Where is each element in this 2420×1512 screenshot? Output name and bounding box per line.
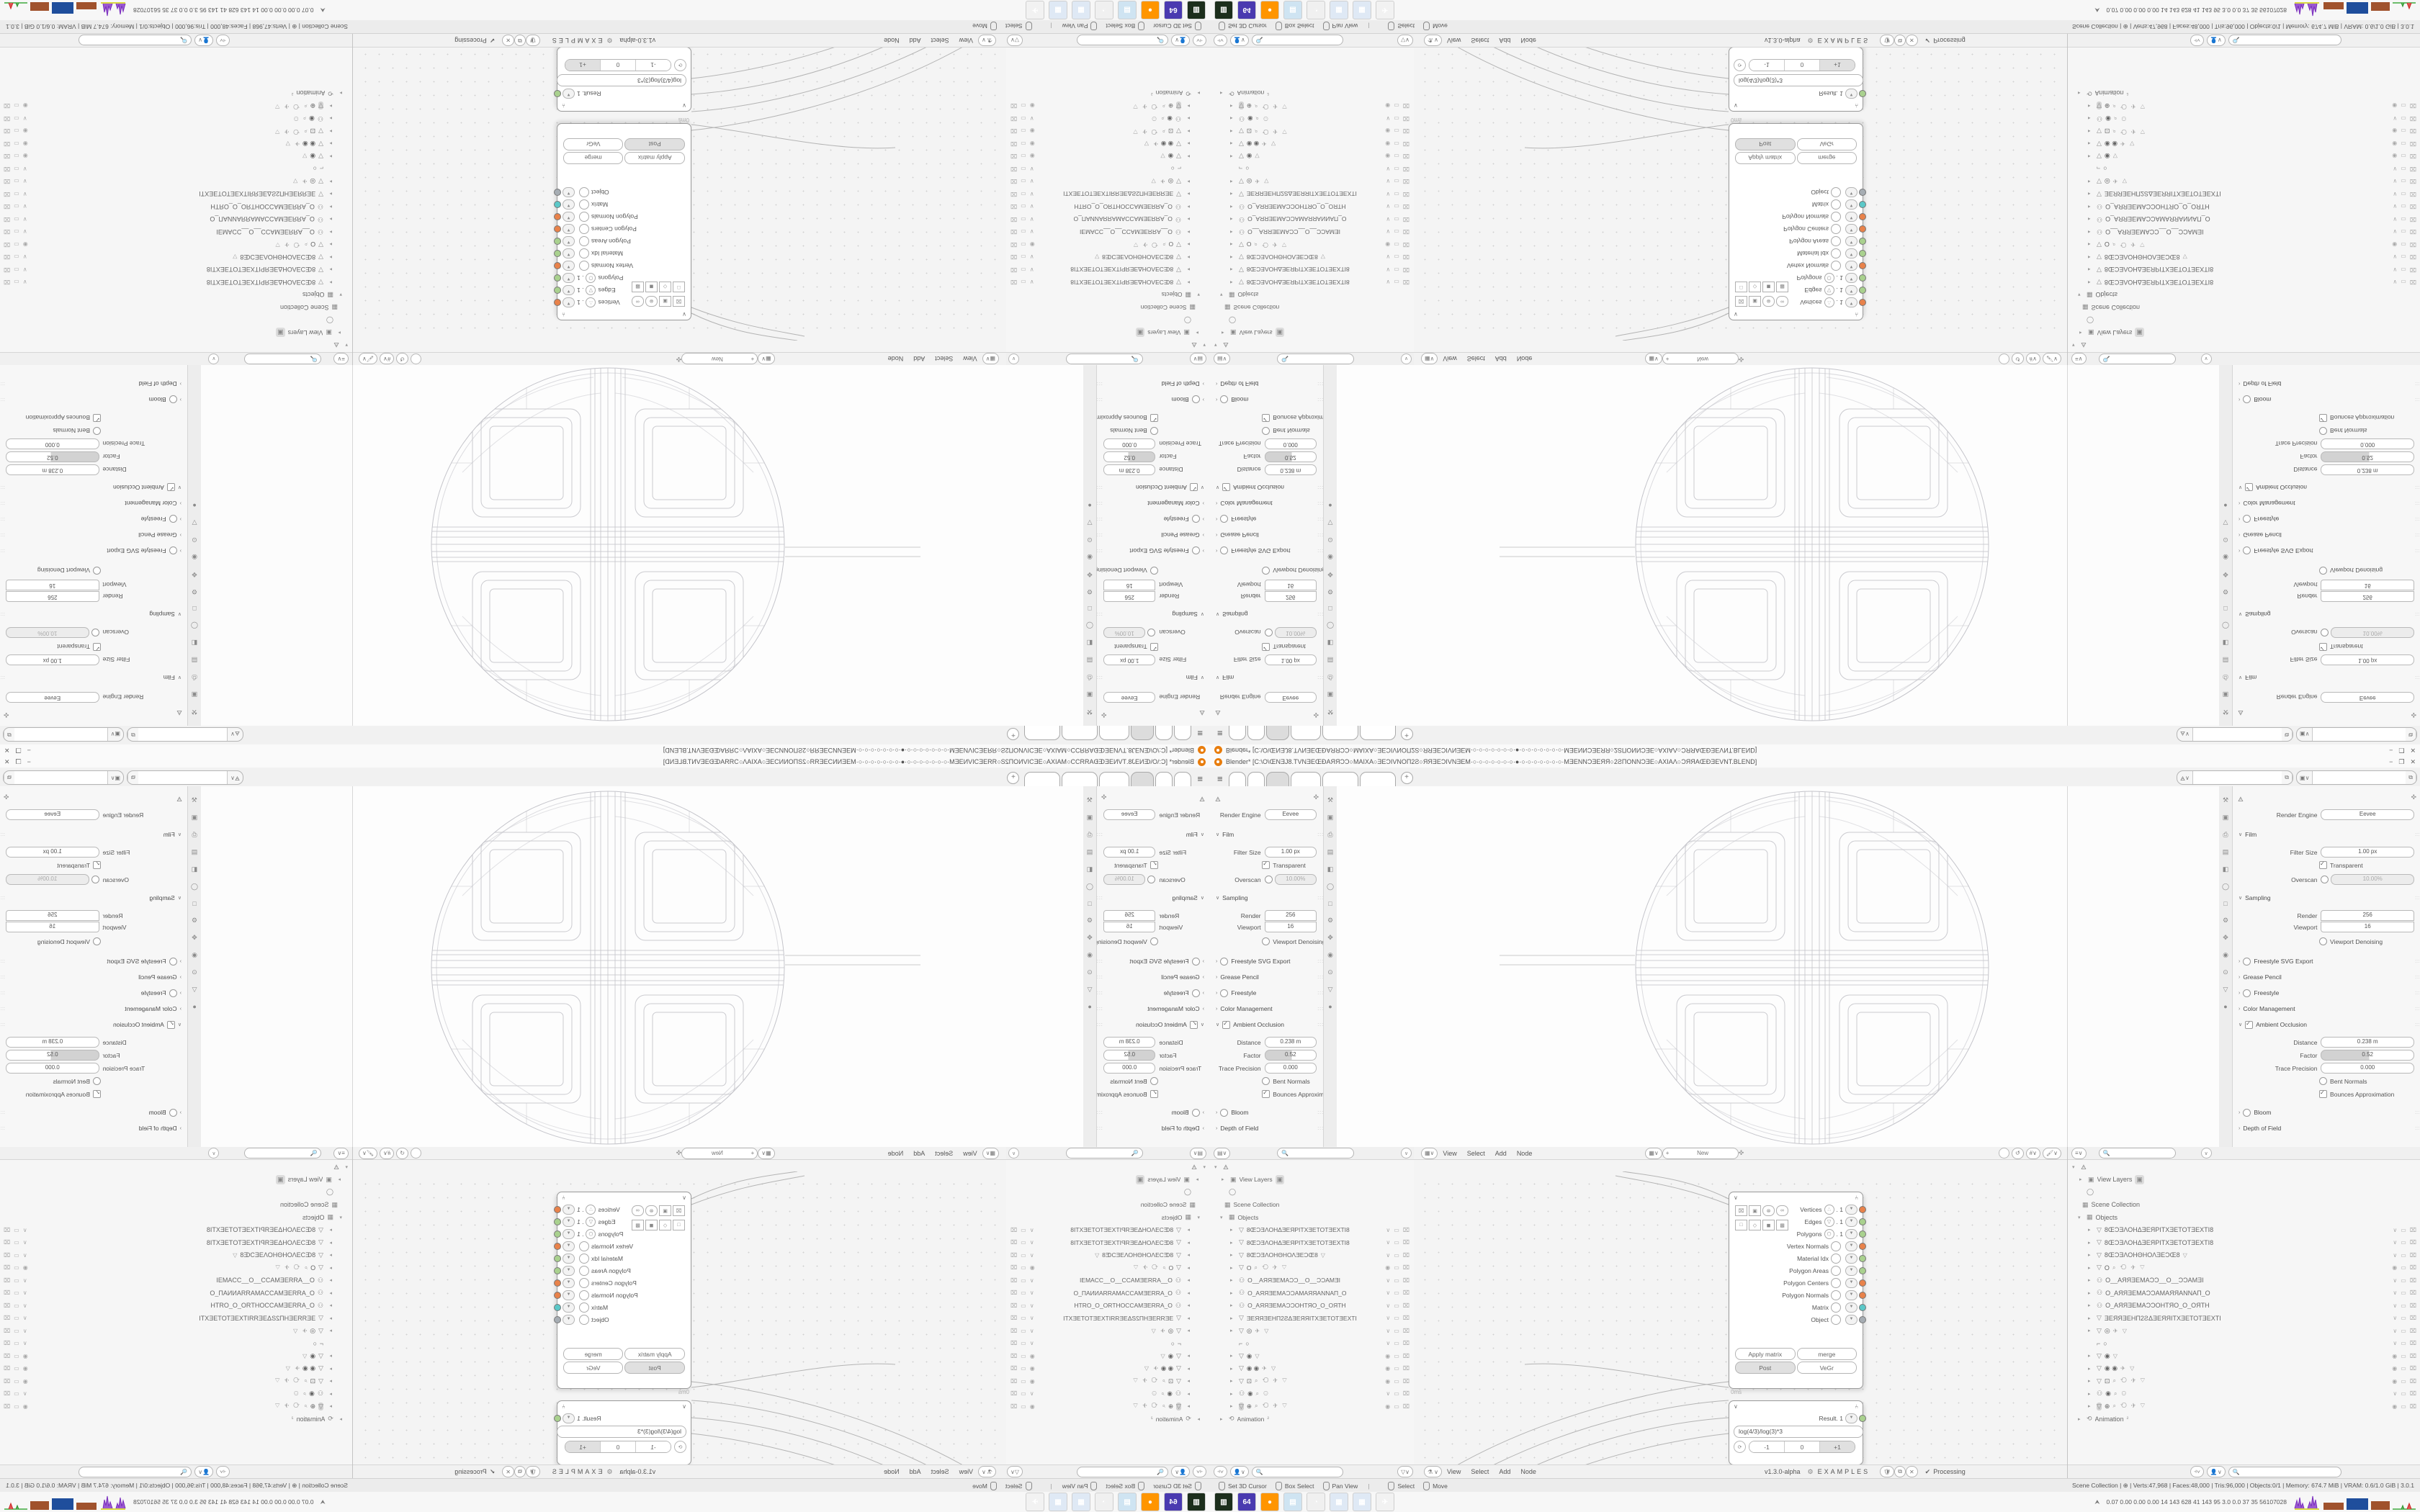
material-tab-icon[interactable]: ● <box>1328 1003 1332 1010</box>
socket-dropdown[interactable]: ▼ <box>1845 1217 1857 1227</box>
output-socket-row[interactable]: Edges ▽ . 1 ▼ <box>557 284 691 297</box>
app-icon[interactable]: ▦ <box>1072 1 1090 19</box>
world-tab-icon[interactable]: ◯ <box>2222 621 2229 629</box>
sverchok-tree-icon[interactable]: ⚗∨ <box>1424 35 1442 46</box>
output-socket-row[interactable]: Matrix ▼ <box>557 199 691 211</box>
scene-collection-row[interactable]: ▦Scene Collection <box>1006 1199 1210 1212</box>
ao-factor-slider[interactable]: 0.52 <box>6 1050 99 1061</box>
outliner-object-row[interactable]: ▸ ▽ 8ŒƆƎΛΟΗΘΗΟΛƎΕƆŒ8 ▽ ∨▭⌧ <box>2068 1249 2420 1262</box>
object-name[interactable]: O <box>310 240 315 248</box>
socket-dropdown[interactable]: ▼ <box>563 212 575 222</box>
object-name[interactable]: ⊕ <box>1168 1403 1173 1410</box>
node-menu-item[interactable]: Add <box>908 1150 930 1157</box>
scene-collection-row[interactable]: ▦Scene Collection <box>2068 301 2420 314</box>
outliner-object-row[interactable]: ▸ ⚇ O_АЯЯƎΕΜΑƆƆΑΜΑЯЯΑΝΝΑΠ_O ∨▭⌧ <box>0 213 352 226</box>
outliner-object-row[interactable]: ▸ ▽ ◉ ▽ ◉▭⌧ <box>0 150 352 163</box>
freestyle-svg-section[interactable]: Freestyle SVG Export <box>2254 958 2313 965</box>
world-row[interactable]: ◯ <box>0 1186 352 1199</box>
object-name[interactable]: 8ŒƆƎΛΟΗΔƎΕЯΡΙΤΧƎΕΤΟΤƎΕΧΤΙ8 <box>207 1226 315 1233</box>
object-toggles[interactable]: ∨▭⌧ <box>2393 1340 2420 1346</box>
node-menu-item[interactable]: View <box>1442 1468 1466 1475</box>
object-name[interactable]: ƎΕЯЯƎΕΗΠ2ƧΔƎΕЯЯΙΤΧƎΕΤΟΤƎΕΧΤΙ <box>2105 1315 2221 1322</box>
object-toggles[interactable]: ∨▭⌧ <box>1006 1328 1034 1334</box>
object-toggles[interactable]: ∨▭⌧ <box>0 1277 27 1284</box>
freestyle-section[interactable]: Freestyle <box>141 516 166 523</box>
ao-section[interactable]: Ambient Occlusion <box>1233 1021 1284 1028</box>
modifier-tab-icon[interactable]: ⚙ <box>1087 917 1093 924</box>
overscan-toggle[interactable] <box>2321 629 2329 636</box>
footer-search[interactable]: 🔍 <box>1252 35 1343 46</box>
sampling-viewport-field[interactable]: 16 <box>1103 580 1155 590</box>
node-grid[interactable]: ∨⑃ ⌧▣ ⊗∞ □◇◼▩ Vertices ∴ <box>353 1171 1006 1465</box>
scene-tab-icon[interactable]: ◧ <box>1327 865 1334 873</box>
editor-type-icon[interactable]: 🜁 <box>1215 706 1221 719</box>
sampling-section[interactable]: Sampling <box>2245 894 2270 901</box>
dof-section[interactable]: Depth of Field <box>139 380 177 387</box>
output-socket-row[interactable]: Polygon Areas ▼ <box>557 1264 691 1277</box>
object-toggles[interactable]: ◉▭⌧ <box>1385 1365 1414 1372</box>
sampling-render-field[interactable]: 256 <box>1103 910 1155 921</box>
image-icon[interactable]: ▣∨ <box>2297 771 2313 784</box>
object-name[interactable]: O__АЯЯƎΕΜΑƆƆ__O__ƆƆΑΜƎΙ <box>216 228 315 235</box>
unlink-circle-icon[interactable] <box>411 354 421 365</box>
object-toggles[interactable]: ∨▭⌧ <box>1386 1315 1414 1321</box>
result-socket[interactable] <box>554 1415 561 1422</box>
object-toggles[interactable]: ∨▭⌧ <box>1386 1239 1414 1246</box>
funnel-icon[interactable]: ▽∨ <box>1007 35 1023 46</box>
zero-button[interactable]: 0 <box>1785 1441 1820 1452</box>
ao-distance-field[interactable]: 0.238 m <box>1103 1037 1155 1048</box>
output-tab-icon[interactable]: ⎙ <box>192 831 197 839</box>
object-toggles[interactable]: ∨▭⌧ <box>2393 115 2420 122</box>
node-tree-row[interactable]: ▾🜁 <box>2068 1161 2420 1174</box>
world-tab-icon[interactable]: ◯ <box>1327 883 1334 891</box>
outliner-object-row[interactable]: ▸ ⚇ O_АЯЯƎΕΜΑƆƆΟΗΤЯΟ_O_ΟЯΤΗ ∨▭⌧ <box>1210 1300 1414 1313</box>
sampling-viewport-field[interactable]: 16 <box>2321 580 2414 590</box>
socket-dropdown[interactable]: ▼ <box>563 237 575 247</box>
minus-one-button[interactable]: -1 <box>1749 1441 1785 1452</box>
funnel-icon[interactable]: ▽∨ <box>1007 1466 1023 1477</box>
node-menu-item[interactable]: View <box>1438 356 1461 363</box>
node-menu-item[interactable]: Add <box>1494 37 1515 44</box>
scene-tab-icon[interactable]: ◧ <box>1087 639 1093 647</box>
socket-dropdown[interactable]: ▼ <box>563 1290 575 1300</box>
object-name[interactable]: ◉ ◉ <box>1247 140 1259 148</box>
object-name[interactable]: 8ŒƆƎΛΟΗΘΗΟΛƎΕƆŒ8 <box>2105 1251 2180 1259</box>
object-toggles[interactable]: ∨▭⌧ <box>0 228 27 235</box>
object-name[interactable]: O_АЯЯƎΕΜΑƆƆΟΗΤЯΟ_O_ΟЯΤΗ <box>1247 203 1346 210</box>
object-name[interactable]: O <box>2105 240 2110 248</box>
objects-node-header[interactable]: ∨⑃ <box>557 1192 691 1203</box>
tree-select-icon[interactable]: ▦∨ <box>758 354 774 365</box>
node-menu-item[interactable]: Select <box>1462 1150 1490 1157</box>
object-toggles[interactable]: ∨▭⌧ <box>0 216 27 222</box>
particles-tab-icon[interactable]: ✥ <box>1087 570 1093 578</box>
app-icon[interactable]: ▤ <box>1118 1493 1137 1511</box>
object-name[interactable]: ⊕ <box>2105 102 2110 109</box>
object-name[interactable]: O_АЯЯƎΕΜΑƆƆΑΜΑЯЯΑΝΝΑΠ_O <box>2105 1290 2210 1297</box>
bounces-checkbox[interactable] <box>1150 414 1158 422</box>
outliner-object-row[interactable]: ▸ ▽ 8ŒƆƎΛΟΗΔƎΕЯΡΙΤΧƎΕΤΟΤƎΕΧΤΙ8 ∨▭⌧ <box>2068 1236 2420 1249</box>
viewlayer-tab-icon[interactable]: ▤ <box>1327 848 1334 856</box>
viewport-3d[interactable] <box>353 365 1083 726</box>
object-name[interactable]: ◉ <box>309 114 315 122</box>
examples-menu[interactable]: EXAMPLES <box>1818 1468 1870 1475</box>
freestyle-svg-toggle[interactable] <box>169 958 177 966</box>
object-toggles[interactable]: ◉▭⌧ <box>1006 1365 1035 1372</box>
object-toggles[interactable]: ◉▭⌧ <box>1385 140 1414 147</box>
render-engine-select[interactable]: Eevee <box>2321 809 2414 820</box>
object-toggles[interactable]: ∨▭⌧ <box>1386 1390 1414 1397</box>
outliner-object-row[interactable]: ▸ ▽ ⊕ ⌕ ⟲ ✈ ▽ ◉▭⌧ <box>2068 99 2420 112</box>
workspace-tab-active[interactable] <box>1131 726 1154 740</box>
color-management-section[interactable]: Color Management <box>2243 500 2295 507</box>
outliner-object-row[interactable]: ▸ ▽ ƎΕЯЯƎΕΗΠ2ƧΔƎΕЯЯΙΤΧƎΕΤΟΤƎΕΧΤΙ ∨▭⌧ <box>2068 188 2420 201</box>
outliner-object-row[interactable]: ▸ ▽ ƎΕЯЯƎΕΗΠ2ƧΔƎΕЯЯΙΤΧƎΕΤΟΤƎΕΧΤΙ ∨▭⌧ <box>1006 1312 1210 1325</box>
output-tab-icon[interactable]: ⎙ <box>2223 831 2228 839</box>
user-filter-icon[interactable]: 👤∨ <box>1230 35 1249 46</box>
world-tab-icon[interactable]: ◯ <box>1086 621 1093 629</box>
image-id-input[interactable] <box>2313 771 2406 784</box>
grease-pencil-section[interactable]: Grease Pencil <box>2243 973 2281 981</box>
editor-type-icon[interactable]: 🜁 <box>2238 706 2244 719</box>
modifier-tab-icon[interactable]: ⚙ <box>2223 917 2228 924</box>
freestyle-toggle[interactable] <box>169 516 177 523</box>
node-menu-item[interactable]: Select <box>1466 37 1494 44</box>
bent-normals-toggle[interactable] <box>93 1077 101 1085</box>
ao-section[interactable]: Ambient Occlusion <box>1233 484 1284 491</box>
freestyle-svg-toggle[interactable] <box>169 547 177 555</box>
outliner-object-row[interactable]: ▸ ▽ 8ŒƆƎΛΟΗΔƎΕЯΡΙΤΧƎΕΤΟΤƎΕΧΤΙ8 ∨▭⌧ <box>2068 1224 2420 1237</box>
footer-search[interactable]: 🔍 <box>1077 1467 1168 1477</box>
object-name[interactable]: O_АЯЯƎΕΜΑƆƆΑΜΑЯЯΑΝΝΑΠ_O <box>2105 215 2210 222</box>
freestyle-svg-toggle[interactable] <box>1192 547 1200 555</box>
outliner-object-row[interactable]: ▸ ▽ 8ŒƆƎΛΟΗΔƎΕЯΡΙΤΧƎΕΤΟΤƎΕΧΤΙ8 ∨▭⌧ <box>1006 276 1210 289</box>
ao-factor-slider[interactable]: 0.52 <box>1103 451 1155 462</box>
object-name[interactable]: ◉ <box>309 1390 315 1398</box>
footer-search[interactable]: 🔍 <box>79 35 192 46</box>
freestyle-toggle[interactable] <box>169 989 177 997</box>
particles-tab-icon[interactable]: ✥ <box>1087 934 1093 942</box>
overlay-node-icon[interactable]: 🖌∨ <box>359 354 377 365</box>
minimize-button[interactable]: − <box>27 758 31 766</box>
outliner-object-row[interactable]: ▸ ⚇ O__АЯЯƎΕΜΑƆƆ__O__ƆƆΑΜƎΙ ∨▭⌧ <box>2068 225 2420 238</box>
image-icon[interactable]: ▣∨ <box>107 771 123 784</box>
freestyle-section[interactable]: Freestyle <box>1231 989 1256 996</box>
output-socket-row[interactable]: Material Idx ▼ <box>557 248 691 260</box>
outliner-object-row[interactable]: ▸ ▽ 8ŒƆƎΛΟΗΔƎΕЯΡΙΤΧƎΕΤΟΤƎΕΧΤΙ8 ∨▭⌧ <box>1006 1224 1210 1237</box>
sverchok-tree-icon[interactable]: ⚗∨ <box>978 1466 996 1477</box>
outliner-object-row[interactable]: ▸ ⚇ O__АЯЯƎΕΜΑƆƆ__O__ƆƆΑΜƎΙ ∨▭⌧ <box>1210 1274 1414 1287</box>
sampling-viewport-field[interactable]: 16 <box>6 580 99 590</box>
close-button[interactable]: ✕ <box>4 758 10 766</box>
workspace-tab-active[interactable] <box>1131 772 1154 786</box>
outliner-object-row[interactable]: ▸ ⚇ ◉ ⌕ ⚇ ∨▭⌧ <box>2068 112 2420 125</box>
node-menu-item[interactable]: Add <box>905 1468 926 1475</box>
app-icon[interactable]: ▦ <box>1049 1493 1067 1511</box>
pin-icon[interactable]: ✜ <box>2411 711 2416 719</box>
object-toggles[interactable]: ◉▭⌧ <box>1006 241 1035 248</box>
constraints-tab-icon[interactable]: ⊙ <box>2223 968 2228 976</box>
app-icon[interactable]: ▦ <box>1353 1493 1371 1511</box>
workspace-tab[interactable] <box>1247 772 1265 786</box>
workspace-tab[interactable] <box>1360 772 1396 786</box>
filter-size-field[interactable]: 1.00 px <box>1103 654 1155 665</box>
sync-icon[interactable]: ⫞∨ <box>1193 35 1206 46</box>
object-name[interactable]: 8ŒƆƎΛΟΗΔƎΕЯΡΙΤΧƎΕΤΟΤƎΕΧΤΙ8 <box>1070 1239 1173 1246</box>
object-name[interactable]: ◉ ◉ <box>2105 1364 2117 1372</box>
transparent-checkbox[interactable] <box>2319 643 2327 651</box>
output-socket-row[interactable]: Object ▼ <box>557 186 691 199</box>
object-name[interactable]: O_АЯЯƎΕΜΑƆƆΑΜΑЯЯΑΝΝΑΠ_O <box>210 215 315 222</box>
formula-node[interactable]: ∨⑃ Result. 1 ▼ log(4/3)/log(3)*3 ⟳ -1 0 … <box>557 1400 691 1465</box>
minus-one-button[interactable]: -1 <box>635 60 671 71</box>
workspace-tab[interactable] <box>1062 772 1098 786</box>
object-name[interactable]: ƎΕЯЯƎΕΗΠ2ƧΔƎΕЯЯΙΤΧƎΕΤΟΤƎΕΧΤΙ <box>199 190 315 197</box>
freestyle-svg-section[interactable]: Freestyle SVG Export <box>2254 547 2313 554</box>
ao-section[interactable]: Ambient Occlusion <box>2256 1021 2307 1028</box>
node-menu-item[interactable]: Node <box>1512 356 1538 363</box>
world-tab-icon[interactable]: ◯ <box>1327 621 1334 629</box>
object-toggles[interactable]: ◉▭⌧ <box>0 1365 28 1372</box>
object-toggles[interactable]: ∨▭⌧ <box>0 1290 27 1296</box>
outliner-object-row[interactable]: ▸ ▽ ⊡ ⌕ ⟲ ✈ ▽ ◉▭⌧ <box>1210 1375 1414 1388</box>
app-icon[interactable]: 64 <box>1164 1 1183 19</box>
result-socket[interactable] <box>554 90 561 97</box>
outliner-object-row[interactable]: ▸ ▽ ◉ ▽ ◉▭⌧ <box>2068 150 2420 163</box>
object-toggles[interactable]: ∨▭⌧ <box>0 279 27 285</box>
data-tab-icon[interactable]: ▽ <box>1328 518 1333 526</box>
object-name[interactable]: O_АЯЯƎΕΜΑƆƆΟΗΤЯΟ_O_ΟЯΤΗ <box>1247 1302 1346 1309</box>
color-management-section[interactable]: Color Management <box>1147 500 1199 507</box>
menu-icon[interactable]: ≡ <box>1217 773 1223 784</box>
zero-button[interactable]: 0 <box>600 1441 635 1452</box>
ao-factor-slider[interactable]: 0.52 <box>1265 1050 1317 1061</box>
editor-type-icon[interactable]: ▦∨ <box>1421 1148 1438 1159</box>
viewlayer-tab-icon[interactable]: ▤ <box>1087 656 1093 664</box>
object-toggles[interactable]: ∨▭⌧ <box>1006 216 1034 222</box>
object-toggles[interactable]: ◉▭⌧ <box>1006 102 1035 109</box>
display-mode-icon[interactable]: ▤∨ <box>1190 354 1206 365</box>
grease-pencil-section[interactable]: Grease Pencil <box>1220 531 1258 539</box>
sync-icon[interactable]: ⫞∨ <box>1214 1466 1227 1477</box>
node-menu-item[interactable]: View <box>1442 37 1466 44</box>
outliner-object-row[interactable]: ▸ ▽ 8ŒƆƎΛΟΗΔƎΕЯΡΙΤΧƎΕΤΟΤƎΕΧΤΙ8 ∨▭⌧ <box>1210 1236 1414 1249</box>
plus-one-button[interactable]: +1 <box>565 1441 600 1452</box>
sampling-section[interactable]: Sampling <box>1172 611 1197 618</box>
dof-section[interactable]: Depth of Field <box>1220 1125 1258 1132</box>
formula-input[interactable]: log(4/3)/log(3)*3 <box>557 74 686 86</box>
outliner-object-row[interactable]: ▸ ▽ ◉ ◉ ✈ ▽ ◉▭⌧ <box>2068 138 2420 150</box>
object-name[interactable]: ◎ <box>2105 1327 2110 1335</box>
socket-dropdown[interactable]: ▼ <box>563 1413 575 1423</box>
shield-check-icon[interactable]: 🛡 <box>526 1466 540 1477</box>
sampling-viewport-field[interactable]: 16 <box>1265 580 1317 590</box>
object-name[interactable]: ⊕ <box>2105 1403 2110 1410</box>
app-icon[interactable]: ✈ <box>1026 1 1044 19</box>
outliner-object-row[interactable]: ▸ ⚇ O__АЯЯƎΕΜΑƆƆ__O__ƆƆΑΜƎΙ ∨▭⌧ <box>2068 1274 2420 1287</box>
copy-node-icon[interactable]: ⧉ <box>514 1466 526 1477</box>
transparent-checkbox[interactable] <box>1262 643 1270 651</box>
outliner-object-row[interactable]: ▸ ▽ O ⌕ ⟲ ✈ ▽ ◉▭⌧ <box>1006 1261 1210 1274</box>
object-name[interactable]: ⊕ <box>1168 102 1173 109</box>
freestyle-svg-section[interactable]: Freestyle SVG Export <box>1231 547 1290 554</box>
output-socket-row[interactable]: Edges ▽ . 1 ▼ <box>1729 284 1863 297</box>
editor-type-icon[interactable]: ▦∨ <box>1421 354 1438 365</box>
object-toggles[interactable]: ∨▭⌧ <box>1386 191 1414 197</box>
node-tree-row[interactable]: ▾🜁 <box>0 1161 352 1174</box>
viewport-denoising-toggle[interactable] <box>1262 937 1270 945</box>
sampling-section[interactable]: Sampling <box>149 894 174 901</box>
outliner-object-row[interactable]: ⌐ ○ ∨▭⌧ <box>2068 163 2420 176</box>
physics-tab-icon[interactable]: ◉ <box>2223 553 2228 561</box>
object-toggles[interactable]: ∨▭⌧ <box>1006 1390 1034 1397</box>
film-section[interactable]: Film <box>163 674 175 681</box>
object-name[interactable]: ◉ <box>1168 1352 1173 1360</box>
object-name[interactable]: O_АЯЯƎΕΜΑƆƆΟΗΤЯΟ_O_ΟЯΤΗ <box>210 1302 315 1309</box>
workspace-tab[interactable] <box>1155 772 1173 786</box>
constraints-tab-icon[interactable]: ⊙ <box>2223 536 2228 544</box>
output-socket-row[interactable]: Polygons ⬡ . 1 ▼ <box>1729 1228 1863 1240</box>
app-icon[interactable]: ▤ <box>1118 1 1137 19</box>
animation-row[interactable]: ▸⟲Animation² <box>2068 87 2420 100</box>
output-socket-row[interactable]: Polygon Centers ▼ <box>557 223 691 235</box>
ao-checkbox[interactable] <box>167 1021 175 1029</box>
filter-chevron-icon[interactable]: ∨ <box>208 354 219 364</box>
socket-dropdown[interactable]: ▼ <box>1845 286 1857 296</box>
object-toggles[interactable]: ∨▭⌧ <box>1386 228 1414 235</box>
sync-icon[interactable]: ⫞∨ <box>2190 35 2204 46</box>
sampling-viewport-field[interactable]: 16 <box>1103 922 1155 932</box>
viewlayer-tab-icon[interactable]: ▤ <box>2223 656 2229 664</box>
objects-collection-row[interactable]: ▾▦Objects <box>1210 289 1414 302</box>
outliner-object-row[interactable]: ▸ ▽ ⊡ ⌕ ⟲ ✈ ▽ ◉▭⌧ <box>0 125 352 138</box>
object-toggles[interactable]: ◉▭⌧ <box>1006 1353 1035 1359</box>
clear-node-icon[interactable]: ✕ <box>502 35 514 46</box>
modifier-tab-icon[interactable]: ⚙ <box>1327 917 1333 924</box>
outliner-object-row[interactable]: ▸ ▽ O ⌕ ⟲ ✈ ▽ ◉▭⌧ <box>1006 238 1210 251</box>
data-tab-icon[interactable]: ▽ <box>1088 518 1093 526</box>
outliner-object-row[interactable]: ▸ ▽ ◉ ▽ ◉▭⌧ <box>0 1350 352 1363</box>
ao-distance-field[interactable]: 0.238 m <box>2321 464 2414 475</box>
modifier-tab-icon[interactable]: ⚙ <box>1327 588 1333 595</box>
scene-tab-icon[interactable]: ◧ <box>1087 865 1093 873</box>
outliner-object-row[interactable]: ▸ ⚇ O__АЯЯƎΕΜΑƆƆ__O__ƆƆΑΜƎΙ ∨▭⌧ <box>1006 1274 1210 1287</box>
node-menu-item[interactable]: View <box>1438 1150 1461 1157</box>
outliner-object-row[interactable]: ▸ ▽ ƎΕЯЯƎΕΗΠ2ƧΔƎΕЯЯΙΤΧƎΕΤΟΤƎΕΧΤΙ ∨▭⌧ <box>0 188 352 201</box>
sampling-section[interactable]: Sampling <box>2245 611 2270 618</box>
socket-dropdown[interactable]: ▼ <box>563 200 575 210</box>
node-tree-row[interactable]: ▾🜁 <box>1210 1161 1414 1174</box>
socket-dropdown[interactable]: ▼ <box>1845 274 1857 284</box>
dof-section[interactable]: Depth of Field <box>1162 380 1200 387</box>
snap-node-icon[interactable]: ↺ <box>2012 354 2024 365</box>
outliner-object-row[interactable]: ▸ ▽ 8ŒƆƎΛΟΗΔƎΕЯΡΙΤΧƎΕΤΟΤƎΕΧΤΙ8 ∨▭⌧ <box>2068 264 2420 276</box>
render-engine-select[interactable]: Eevee <box>1103 692 1155 703</box>
object-toggles[interactable]: ∨▭⌧ <box>1006 1290 1034 1296</box>
app-icon[interactable]: ▥ <box>1187 1 1206 19</box>
constraints-tab-icon[interactable]: ⊙ <box>1327 968 1333 976</box>
workspace-tab[interactable] <box>1291 772 1321 786</box>
object-toggles[interactable]: ∨▭⌧ <box>2393 1239 2420 1246</box>
bounces-checkbox[interactable] <box>1262 414 1270 422</box>
object-toggles[interactable]: ◉▭⌧ <box>1385 153 1414 159</box>
image-icon[interactable]: ▣∨ <box>107 728 123 741</box>
view-layers-row[interactable]: ▸▣View Layers▣ <box>2068 1174 2420 1187</box>
sync-icon[interactable]: ⫞∨ <box>1214 35 1227 46</box>
copy-icon[interactable]: ⧉ <box>2282 771 2293 784</box>
apply-matrix-button[interactable]: Apply matrix <box>625 152 686 164</box>
socket-dropdown[interactable]: ▼ <box>563 89 575 99</box>
workspace-tab[interactable] <box>1099 726 1129 740</box>
output-socket-row[interactable]: Vertices ∴ . 1 ▼ <box>1729 297 1863 309</box>
object-name[interactable]: ◉ <box>310 152 315 160</box>
overscan-toggle[interactable] <box>1265 876 1273 883</box>
color-management-section[interactable]: Color Management <box>1220 500 1272 507</box>
object-toggles[interactable]: ◉▭⌧ <box>1006 153 1035 159</box>
merge-button[interactable]: merge <box>563 152 624 164</box>
object-name[interactable]: O__АЯЯƎΕΜΑƆƆ__O__ƆƆΑΜƎΙ <box>1080 1277 1173 1284</box>
data-tab-icon[interactable]: ▽ <box>2223 518 2228 526</box>
app-icon[interactable]: ▦ <box>1330 1 1348 19</box>
modifier-tab-icon[interactable]: ⚙ <box>192 588 197 595</box>
image-id-input[interactable] <box>14 728 107 741</box>
constraints-tab-icon[interactable]: ⊙ <box>1087 536 1093 544</box>
object-name[interactable]: O__АЯЯƎΕΜΑƆƆ__O__ƆƆΑΜƎΙ <box>1247 1277 1340 1284</box>
output-tab-icon[interactable]: ⎙ <box>2223 673 2228 681</box>
app-icon[interactable]: ▥ <box>1187 1493 1206 1511</box>
output-socket-row[interactable]: Polygon Centers ▼ <box>557 1277 691 1289</box>
node-tree-row[interactable]: ▾🜁 <box>1210 339 1414 352</box>
trace-precision-field[interactable]: 0.000 <box>1103 1063 1155 1074</box>
outliner-object-row[interactable]: ▸ ⚇ O_АЯЯƎΕΜΑƆƆΟΗΤЯΟ_O_ΟЯΤΗ ∨▭⌧ <box>0 1300 352 1313</box>
output-socket-row[interactable]: Edges ▽ . 1 ▼ <box>1729 1215 1863 1228</box>
object-name[interactable]: 8ŒƆƎΛΟΗΔƎΕЯΡΙΤΧƎΕΤΟΤƎΕΧΤΙ8 <box>207 1239 315 1246</box>
sampling-section[interactable]: Sampling <box>1172 894 1197 901</box>
app-icon[interactable]: ▦ <box>1330 1493 1348 1511</box>
object-name[interactable]: ⊡ <box>310 127 316 135</box>
object-tab-icon[interactable]: □ <box>2223 900 2227 907</box>
sync-icon[interactable]: ⫞∨ <box>1193 1466 1206 1477</box>
new-tree-button[interactable]: +New <box>1662 354 1739 365</box>
plus-one-button[interactable]: +1 <box>1820 1441 1855 1452</box>
object-name[interactable]: ◎ <box>1247 177 1252 185</box>
outliner-object-row[interactable]: ▸ ▽ ◎ ✈ ▽ ∨▭⌧ <box>1006 175 1210 188</box>
outliner-object-row[interactable]: ▸ ▽ ◉ ◉ ✈ ▽ ◉▭⌧ <box>1006 1362 1210 1375</box>
object-toggles[interactable]: ∨▭⌧ <box>1386 1227 1414 1233</box>
formula-input[interactable]: log(4/3)/log(3)*3 <box>557 1426 686 1438</box>
ao-distance-field[interactable]: 0.238 m <box>2321 1037 2414 1048</box>
overscan-toggle[interactable] <box>91 876 99 883</box>
app-icon[interactable]: ◔ <box>1307 1493 1325 1511</box>
outliner-object-row[interactable]: ▸ ⚇ ◉ ⌕ ⚇ ∨▭⌧ <box>1006 1387 1210 1400</box>
ao-factor-slider[interactable]: 0.52 <box>6 451 99 462</box>
constraints-tab-icon[interactable]: ⊙ <box>192 968 197 976</box>
node-menu-item[interactable]: View <box>958 1150 982 1157</box>
outliner-object-row[interactable]: ▸ ▽ ⊕ ⌕ ⟲ ✈ ▽ ◉▭⌧ <box>1210 1400 1414 1413</box>
object-toggles[interactable]: ∨▭⌧ <box>2393 1390 2420 1397</box>
objects-in-node[interactable]: ∨⑃ ⌧▣ ⊗∞ □◇◼▩ Vertices ∴ <box>557 123 691 320</box>
filter-chevron-icon[interactable]: ∨ <box>2201 1148 2212 1158</box>
shield-check-icon[interactable]: 🛡 <box>1880 1466 1894 1477</box>
outliner-object-row[interactable]: ▸ ▽ ◎ ✈ ▽ ∨▭⌧ <box>1210 175 1414 188</box>
output-socket-row[interactable]: Vertex Normals ▼ <box>1729 260 1863 272</box>
pin-icon[interactable]: ✜ <box>1313 711 1319 719</box>
outliner-search[interactable]: 🔍 <box>2099 354 2176 364</box>
object-toggles[interactable]: ◉▭⌧ <box>0 140 28 147</box>
output-tab-icon[interactable]: ⎙ <box>1087 831 1092 839</box>
object-name[interactable]: ○ <box>1171 1340 1175 1347</box>
